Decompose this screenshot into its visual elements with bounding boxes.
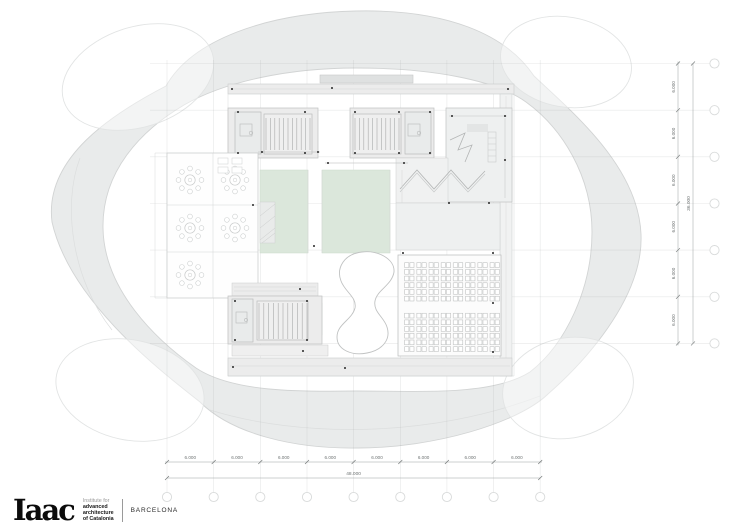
plan-rooms <box>155 75 514 376</box>
elevator-top-right <box>405 112 431 154</box>
bubble-se-icon <box>493 325 643 450</box>
dim-total-bottom: 48.000 <box>346 471 361 477</box>
dim-label-bottom-3: 6.000 <box>278 455 290 460</box>
bottom-corridor <box>228 358 512 376</box>
dim-total-right: 36.000 <box>686 196 692 211</box>
exhibition-room <box>446 108 512 202</box>
dim-label-bottom-1: 6.000 <box>185 455 197 460</box>
dim-label-right-6: 6.000 <box>671 314 676 326</box>
dim-label-right-1: 6.000 <box>671 81 676 93</box>
bubble-sw-icon <box>46 325 214 454</box>
top-slab <box>320 75 413 83</box>
dim-label-bottom-5: 6.000 <box>371 455 383 460</box>
grid-bubbles-bottom <box>162 492 544 501</box>
logo-wordmark: Iaac <box>13 497 74 523</box>
stair-core-bottom <box>228 283 328 356</box>
courtyard-green-2 <box>322 170 390 253</box>
dim-label-bottom-2: 6.000 <box>231 455 243 460</box>
logo-city: BARCELONA <box>131 507 178 514</box>
cafe-room <box>167 153 258 298</box>
stair-core-top-right <box>350 108 434 158</box>
dim-label-right-3: 6.000 <box>671 174 676 186</box>
planting-hatch <box>260 202 275 243</box>
dim-label-bottom-6: 6.000 <box>418 455 430 460</box>
dim-label-bottom-4: 6.000 <box>325 455 337 460</box>
dim-label-right-2: 6.000 <box>671 127 676 139</box>
dim-label-bottom-8: 6.000 <box>511 455 523 460</box>
stair-bottom <box>257 301 308 340</box>
iaac-logo: Iaac Institute for advanced architecture… <box>13 497 178 523</box>
dim-label-right-5: 6.000 <box>671 267 676 279</box>
logo-tagline: Institute for advanced architecture of C… <box>83 498 114 522</box>
floor-plan-drawing: 6.000 6.000 6.000 6.000 6.000 6.000 6.00… <box>0 0 730 529</box>
dim-label-bottom-7: 6.000 <box>464 455 476 460</box>
pond-blob <box>337 252 394 354</box>
logo-tagline-line4: of Catalonia <box>83 516 114 522</box>
stair-core-top-left <box>228 108 318 158</box>
elevator-top-left <box>235 112 261 154</box>
grid-bubbles-right <box>710 59 719 348</box>
drawing-sheet: 6.000 6.000 6.000 6.000 6.000 6.000 6.00… <box>0 0 730 529</box>
bubble-ne-icon <box>493 6 639 118</box>
auditorium <box>396 203 502 356</box>
logo-divider <box>122 499 123 522</box>
elevator-bottom <box>232 299 253 342</box>
bubble-nw-icon <box>48 5 227 148</box>
dim-label-right-4: 6.000 <box>671 221 676 233</box>
